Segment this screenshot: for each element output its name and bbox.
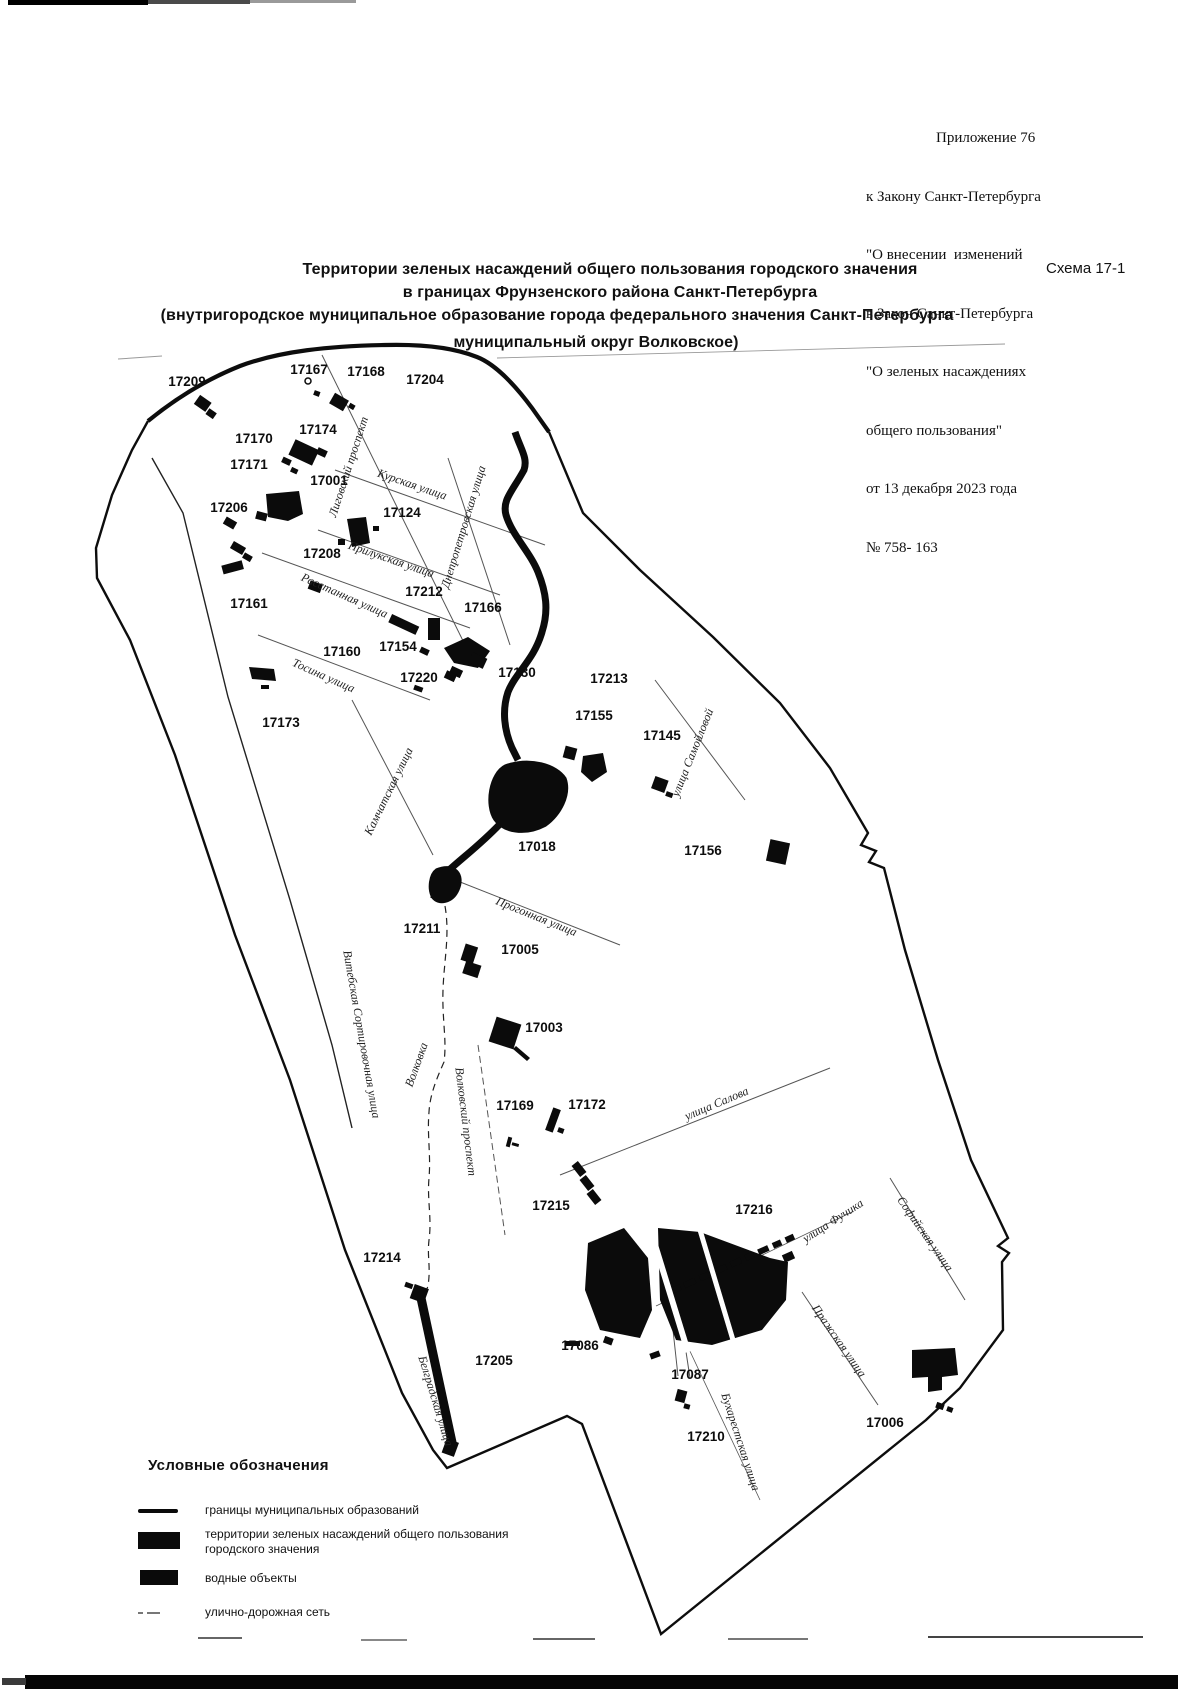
area-label-17130: 17130: [498, 665, 536, 680]
area-label-17018: 17018: [518, 839, 556, 854]
street-label: Камчатская улица: [361, 745, 416, 838]
scan-line: [728, 1638, 808, 1640]
area-label-17174: 17174: [299, 422, 337, 437]
legend-symbol-green-territory: [138, 1532, 180, 1549]
legend-item-green-line2: городского значения: [205, 1542, 565, 1557]
document-page: Приложение 76 к Закону Санкт-Петербурга …: [0, 0, 1200, 1697]
street-label: Волковка: [402, 1041, 431, 1089]
area-label-17086: 17086: [561, 1338, 599, 1353]
area-label-17211: 17211: [404, 921, 441, 936]
street-label: Софийская улица: [894, 1194, 956, 1274]
area-label-17006: 17006: [866, 1415, 904, 1430]
scan-bar-bottom: [25, 1675, 1178, 1689]
area-label-17214: 17214: [363, 1250, 401, 1265]
area-label-17206: 17206: [210, 500, 248, 515]
area-label-17145: 17145: [643, 728, 681, 743]
legend-item-green-territories: территории зеленых насаждений общего пол…: [205, 1527, 565, 1557]
area-label-17168: 17168: [347, 364, 385, 379]
river-pond-2: [429, 867, 461, 903]
area-label-17172: 17172: [568, 1097, 606, 1112]
area-label-17205: 17205: [475, 1353, 513, 1368]
area-label-17171: 17171: [230, 457, 268, 472]
area-label-17003: 17003: [525, 1020, 563, 1035]
area-label-17156: 17156: [684, 843, 722, 858]
scan-line: [361, 1639, 407, 1641]
street-label: Бухарестская улица: [718, 1390, 763, 1492]
river-pond: [489, 761, 568, 832]
street-label: Волковский проспект: [452, 1066, 479, 1176]
area-label-17154: 17154: [379, 639, 417, 654]
area-label-17155: 17155: [575, 708, 613, 723]
legend-header: Условные обозначения: [148, 1457, 329, 1474]
area-number-labels: 1720917167171681720417170171741717117001…: [168, 362, 904, 1444]
street-label: Расстанная улица: [298, 570, 390, 621]
area-label-17161: 17161: [230, 596, 268, 611]
area-label-17005: 17005: [501, 942, 539, 957]
street-label: улица Самойловой: [668, 707, 716, 800]
street-label: улица Фучика: [799, 1196, 866, 1246]
area-label-17210: 17210: [687, 1429, 725, 1444]
area-label-17167: 17167: [290, 362, 328, 377]
area-label-17169: 17169: [496, 1098, 534, 1113]
area-label-17220: 17220: [400, 670, 438, 685]
legend-symbol-street-network-dash: [147, 1612, 160, 1614]
water-objects: [421, 432, 568, 1299]
area-label-17215: 17215: [532, 1198, 570, 1213]
street-label: Витебская Сортировочная улица: [340, 949, 383, 1119]
scan-line: [928, 1636, 1143, 1638]
legend-item-water: водные объекты: [205, 1571, 297, 1586]
scan-bar-bottom-nub: [2, 1678, 26, 1685]
green-territory-blobs: [194, 378, 958, 1457]
area-label-17216: 17216: [735, 1202, 773, 1217]
municipal-boundary: [96, 345, 1009, 1634]
legend-symbol-water: [140, 1570, 178, 1585]
river-thin-course: [421, 906, 447, 1299]
legend-symbol-street-network: [138, 1612, 143, 1614]
area-label-17087: 17087: [671, 1367, 709, 1382]
area-label-17124: 17124: [383, 505, 421, 520]
legend-item-street-network: улично-дорожная сеть: [205, 1605, 330, 1620]
legend-item-green-line1: территории зеленых насаждений общего пол…: [205, 1527, 565, 1542]
area-label-17209: 17209: [168, 374, 206, 389]
area-label-17213: 17213: [590, 671, 628, 686]
map-schematic: 1720917167171681720417170171741717117001…: [0, 0, 1200, 1697]
area-label-17170: 17170: [235, 431, 273, 446]
area-label-17208: 17208: [303, 546, 341, 561]
area-label-17160: 17160: [323, 644, 361, 659]
area-label-17166: 17166: [464, 600, 502, 615]
scan-line: [198, 1637, 242, 1639]
legend-item-boundaries: границы муниципальных образований: [205, 1503, 419, 1518]
street-label: Прогонная улица: [493, 893, 579, 939]
scan-line: [533, 1638, 595, 1640]
area-label-17173: 17173: [262, 715, 300, 730]
street-label: Тосина улица: [290, 655, 357, 695]
street-label: Днепропетровская улица: [438, 464, 489, 591]
legend-symbol-boundary: [138, 1509, 178, 1513]
area-label-17204: 17204: [406, 372, 444, 387]
street-label: Пражская улица: [809, 1301, 870, 1380]
